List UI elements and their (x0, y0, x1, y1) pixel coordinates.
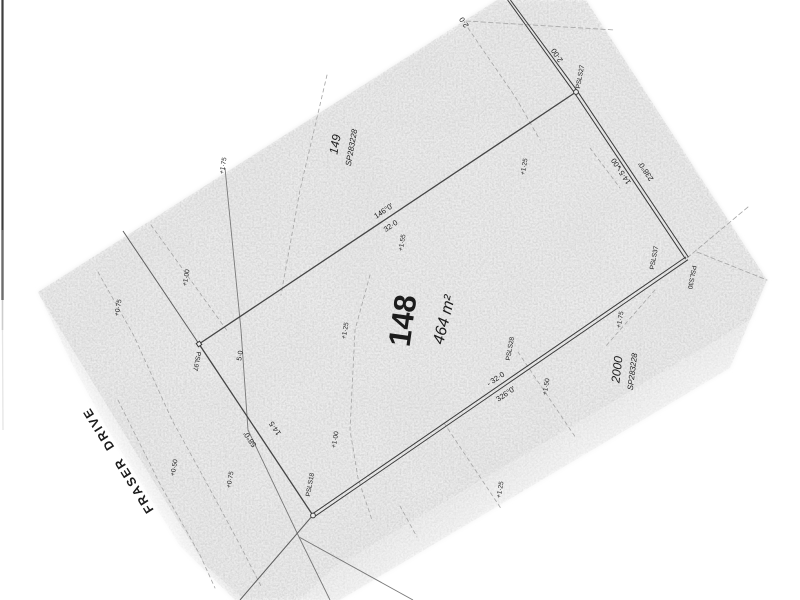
svg-text:148: 148 (382, 292, 424, 348)
